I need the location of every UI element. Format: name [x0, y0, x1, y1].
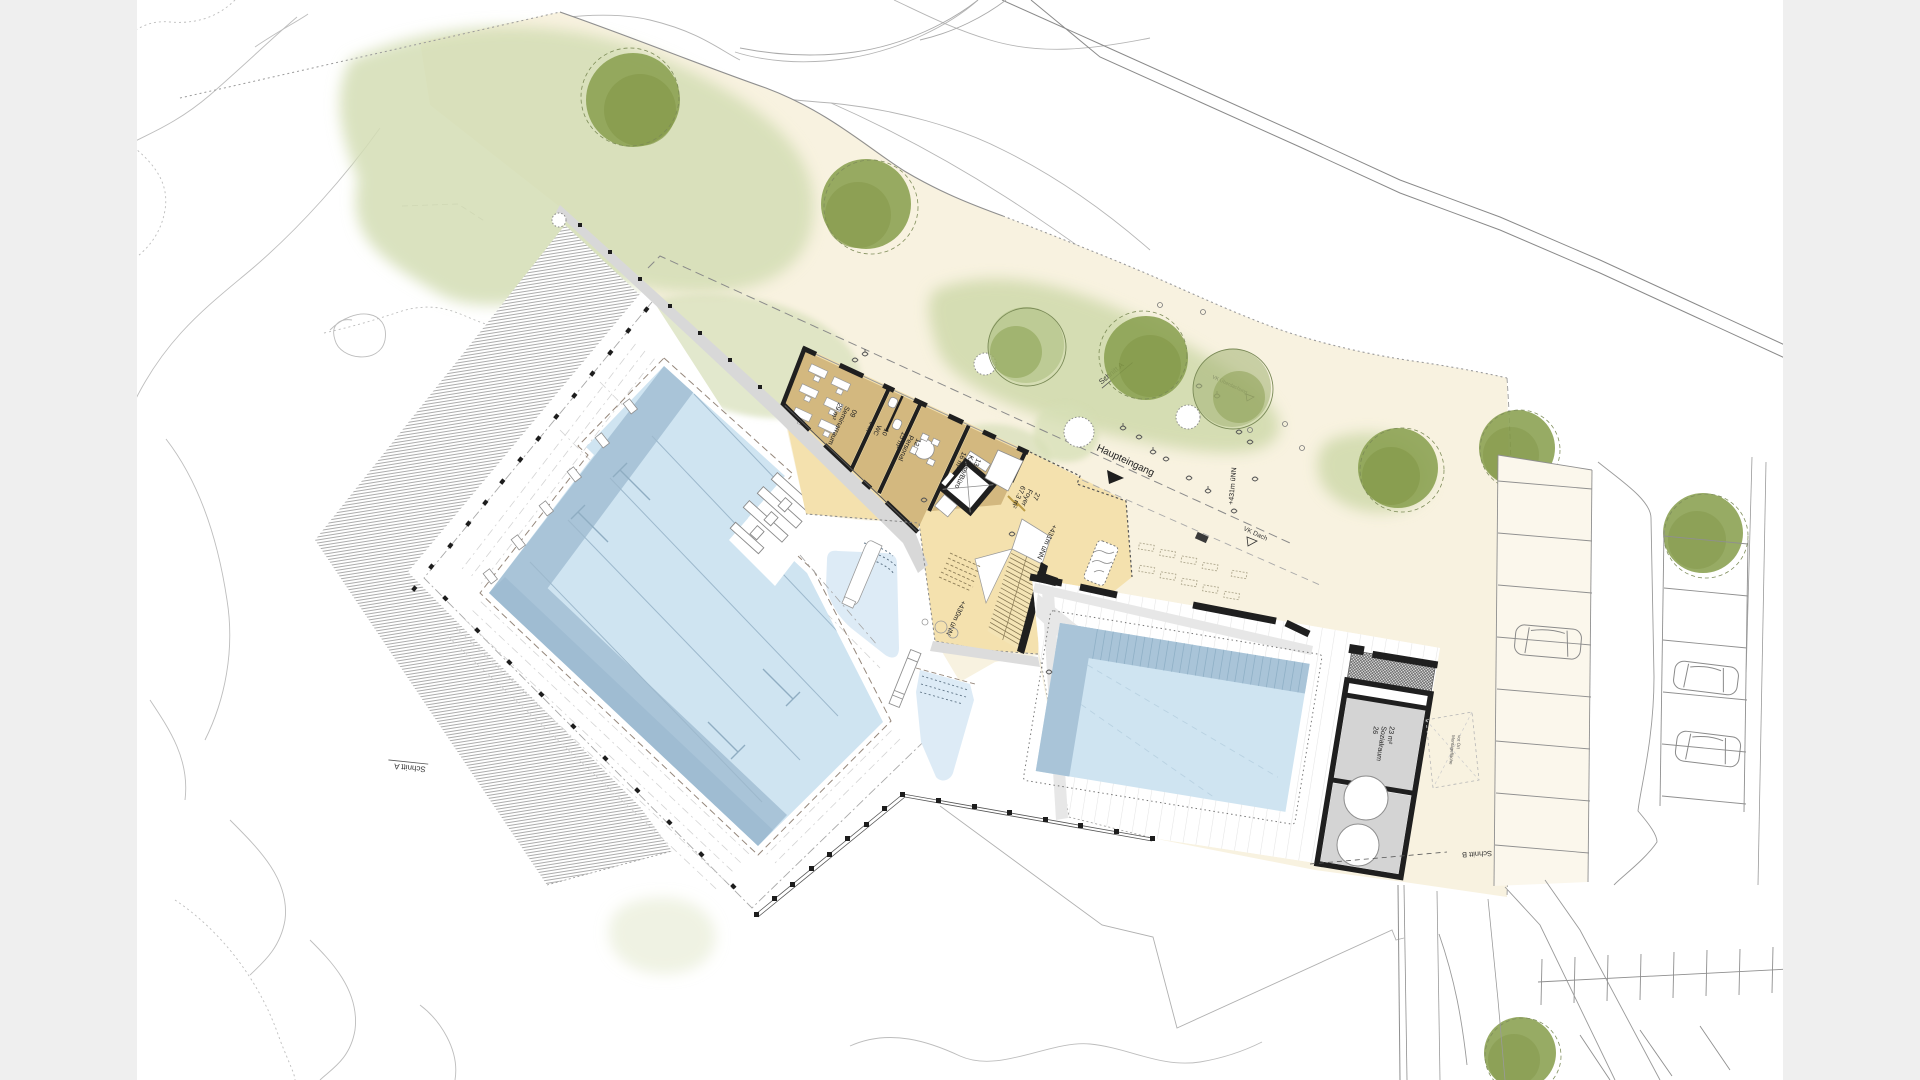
svg-text:26: 26 [1371, 726, 1379, 735]
svg-text:Schnitt B: Schnitt B [1462, 849, 1492, 860]
